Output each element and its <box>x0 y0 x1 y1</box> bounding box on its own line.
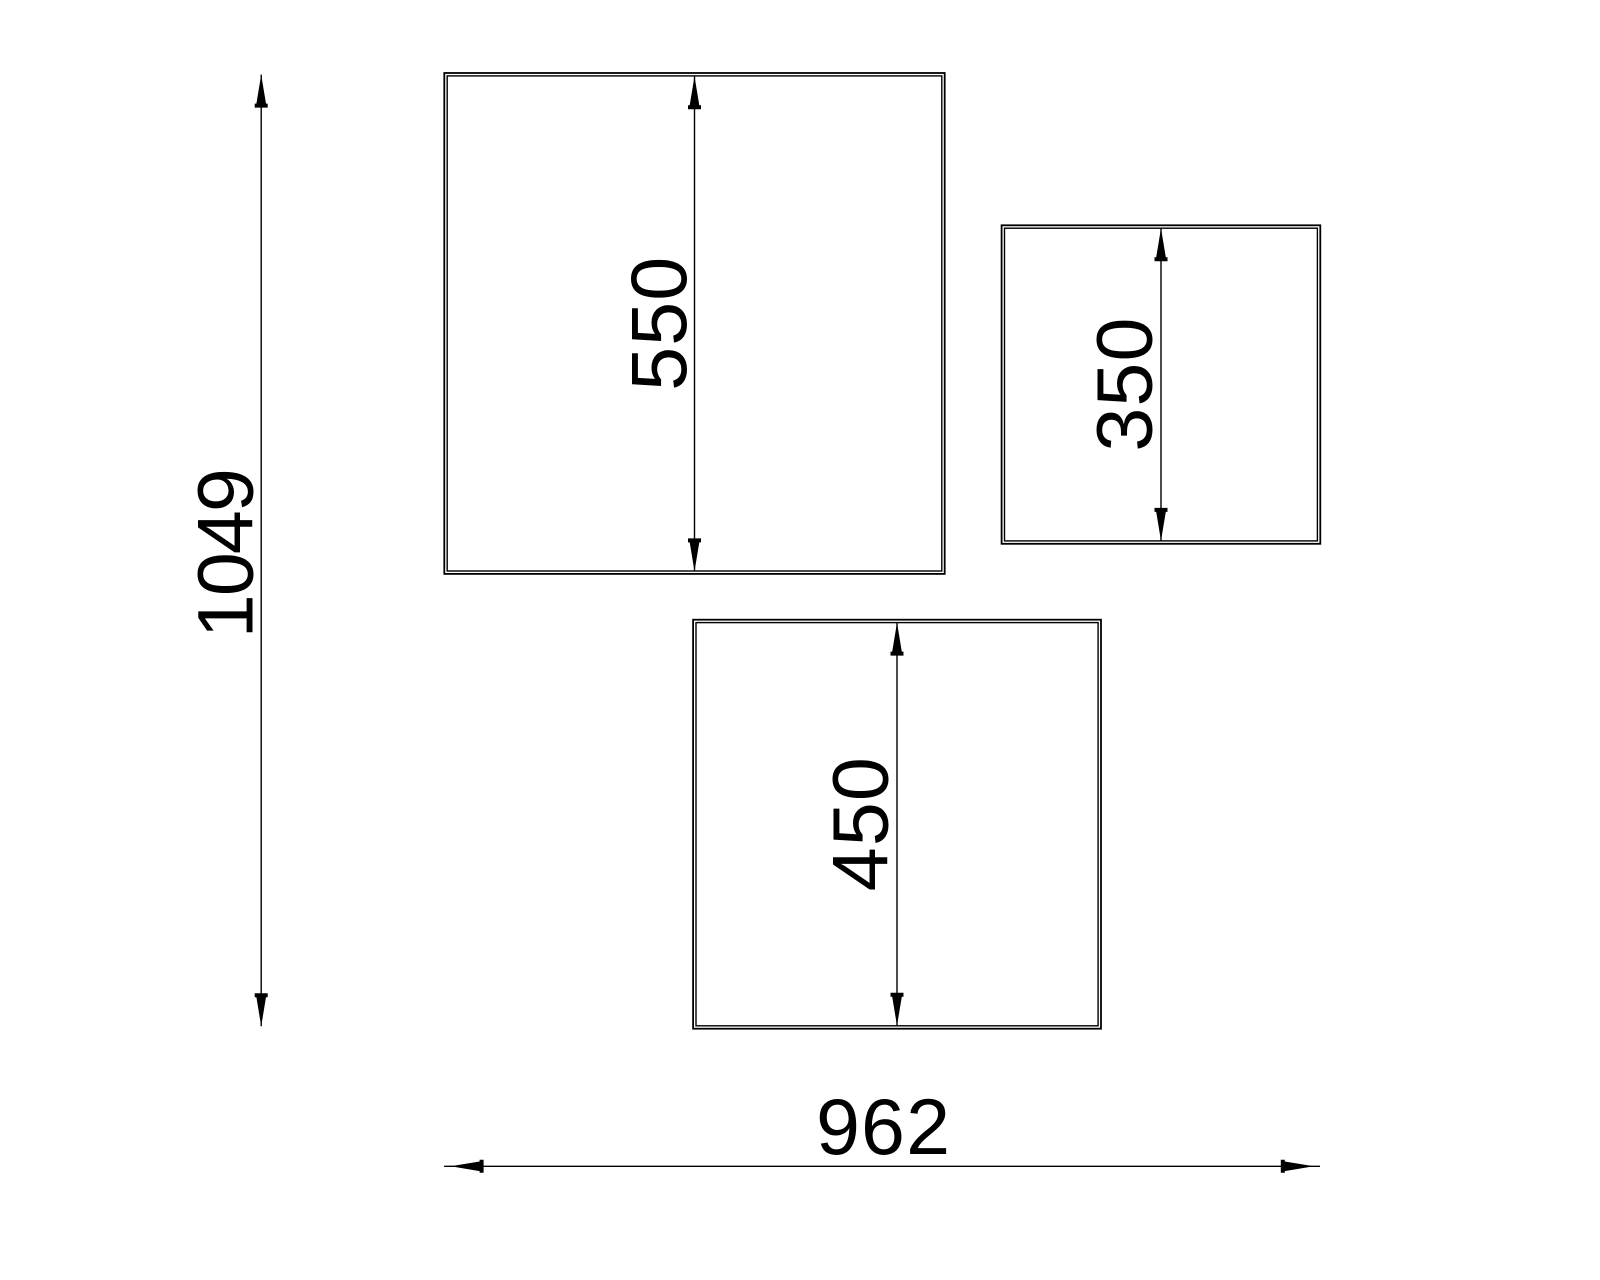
svg-text:962: 962 <box>816 1082 950 1171</box>
svg-text:350: 350 <box>1080 318 1169 452</box>
svg-text:450: 450 <box>815 757 904 891</box>
svg-text:550: 550 <box>614 257 703 391</box>
svg-text:1049: 1049 <box>181 468 270 638</box>
